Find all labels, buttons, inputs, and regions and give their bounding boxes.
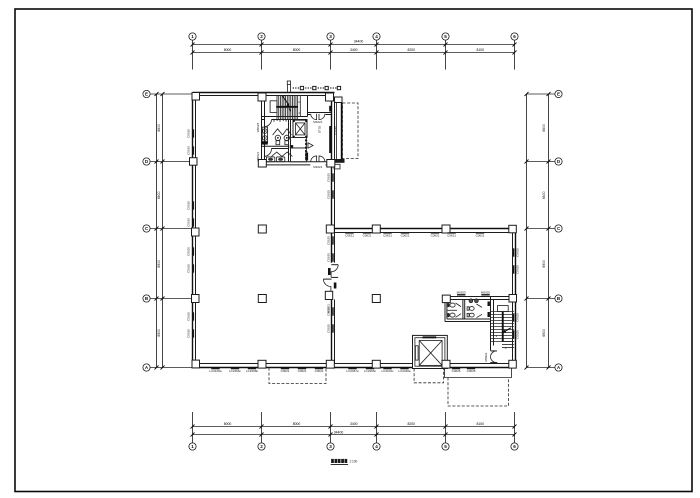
- svg-text:8000: 8000: [224, 422, 232, 426]
- svg-text:3400: 3400: [350, 422, 358, 426]
- svg-text:6900: 6900: [542, 260, 546, 268]
- svg-text:34400: 34400: [334, 430, 344, 434]
- svg-text:C0625: C0625: [187, 129, 191, 138]
- svg-text:LC2106c: LC2106c: [381, 369, 394, 373]
- svg-text:6900: 6900: [542, 329, 546, 337]
- svg-text:E: E: [557, 92, 560, 97]
- svg-text:M0921: M0921: [484, 352, 488, 362]
- svg-text:8200: 8200: [408, 422, 416, 426]
- svg-text:3: 3: [329, 444, 332, 449]
- svg-text:8000: 8000: [293, 422, 301, 426]
- svg-text:4: 4: [375, 34, 378, 39]
- svg-text:6900: 6900: [157, 260, 161, 268]
- svg-text:C0625: C0625: [187, 312, 191, 321]
- svg-text:8000: 8000: [293, 48, 301, 52]
- svg-text:C1530: C1530: [333, 126, 337, 135]
- svg-text:C0621: C0621: [447, 234, 456, 238]
- svg-text:C0625: C0625: [187, 201, 191, 210]
- svg-text:5: 5: [444, 444, 447, 449]
- svg-text:C0621: C0621: [383, 234, 392, 238]
- svg-text:C0625: C0625: [187, 247, 191, 256]
- svg-text:LC2467a: LC2467a: [346, 369, 359, 373]
- svg-text:8100: 8100: [477, 48, 485, 52]
- svg-text:C0621: C0621: [315, 369, 324, 373]
- svg-text:6600: 6600: [157, 124, 161, 132]
- svg-text:C0621: C0621: [401, 234, 410, 238]
- svg-text:4: 4: [375, 444, 378, 449]
- svg-text:W0625: W0625: [256, 122, 260, 132]
- svg-text:6600: 6600: [157, 191, 161, 199]
- svg-text:6: 6: [513, 34, 516, 39]
- svg-text:C0625: C0625: [327, 190, 331, 199]
- svg-text:8000: 8000: [224, 48, 232, 52]
- svg-text:LC2466b: LC2466b: [246, 369, 259, 373]
- svg-text:LC2106a: LC2106a: [209, 369, 222, 373]
- svg-text:C0625: C0625: [327, 253, 331, 262]
- svg-text:C0625: C0625: [467, 369, 476, 373]
- svg-text:C0625: C0625: [327, 324, 331, 333]
- svg-text:C0625: C0625: [515, 313, 519, 322]
- svg-text:1: 1: [191, 34, 194, 39]
- svg-text:C0625: C0625: [187, 218, 191, 227]
- svg-text:C0625: C0625: [515, 248, 519, 257]
- svg-text:8200: 8200: [408, 48, 416, 52]
- svg-text:C0621: C0621: [281, 369, 290, 373]
- svg-text:3: 3: [329, 34, 332, 39]
- svg-text:C0621: C0621: [298, 369, 307, 373]
- svg-text:6900: 6900: [157, 329, 161, 337]
- svg-text:6600: 6600: [542, 191, 546, 199]
- svg-text:C0625: C0625: [515, 265, 519, 274]
- svg-text:M1021: M1021: [313, 120, 323, 124]
- svg-text:DT02: DT02: [317, 126, 321, 134]
- svg-text:5: 5: [444, 34, 447, 39]
- svg-text:C0621: C0621: [345, 234, 354, 238]
- svg-text:M1821: M1821: [327, 304, 331, 314]
- svg-text:C0625: C0625: [187, 146, 191, 155]
- svg-text:W0621: W0621: [256, 151, 260, 161]
- svg-text:C0625: C0625: [187, 329, 191, 338]
- svg-text:6: 6: [513, 444, 516, 449]
- svg-text:C0621: C0621: [363, 234, 372, 238]
- svg-text:34400: 34400: [354, 40, 364, 44]
- svg-text:1: 1: [191, 444, 194, 449]
- svg-text:C0625: C0625: [327, 173, 331, 182]
- svg-text:2: 2: [260, 34, 263, 39]
- svg-text:LC2466c: LC2466c: [229, 369, 242, 373]
- svg-text:C0621: C0621: [476, 234, 485, 238]
- svg-text:C0625: C0625: [452, 369, 461, 373]
- svg-text:C0625: C0625: [187, 264, 191, 273]
- svg-text:M0925: M0925: [457, 291, 467, 295]
- svg-text:C0625: C0625: [515, 330, 519, 339]
- svg-text:LC2446a: LC2446a: [398, 369, 411, 373]
- svg-text:LC2466c: LC2466c: [364, 369, 377, 373]
- svg-text:C0625: C0625: [327, 236, 331, 245]
- svg-text:8100: 8100: [477, 422, 485, 426]
- svg-text:M1021: M1021: [313, 165, 323, 169]
- svg-text:M0925: M0925: [481, 291, 491, 295]
- svg-text:3400: 3400: [350, 48, 358, 52]
- svg-text:E: E: [145, 92, 148, 97]
- svg-text:6600: 6600: [542, 124, 546, 132]
- svg-text:2: 2: [260, 444, 263, 449]
- svg-text:C0621: C0621: [431, 234, 440, 238]
- svg-text:1:100: 1:100: [349, 460, 357, 464]
